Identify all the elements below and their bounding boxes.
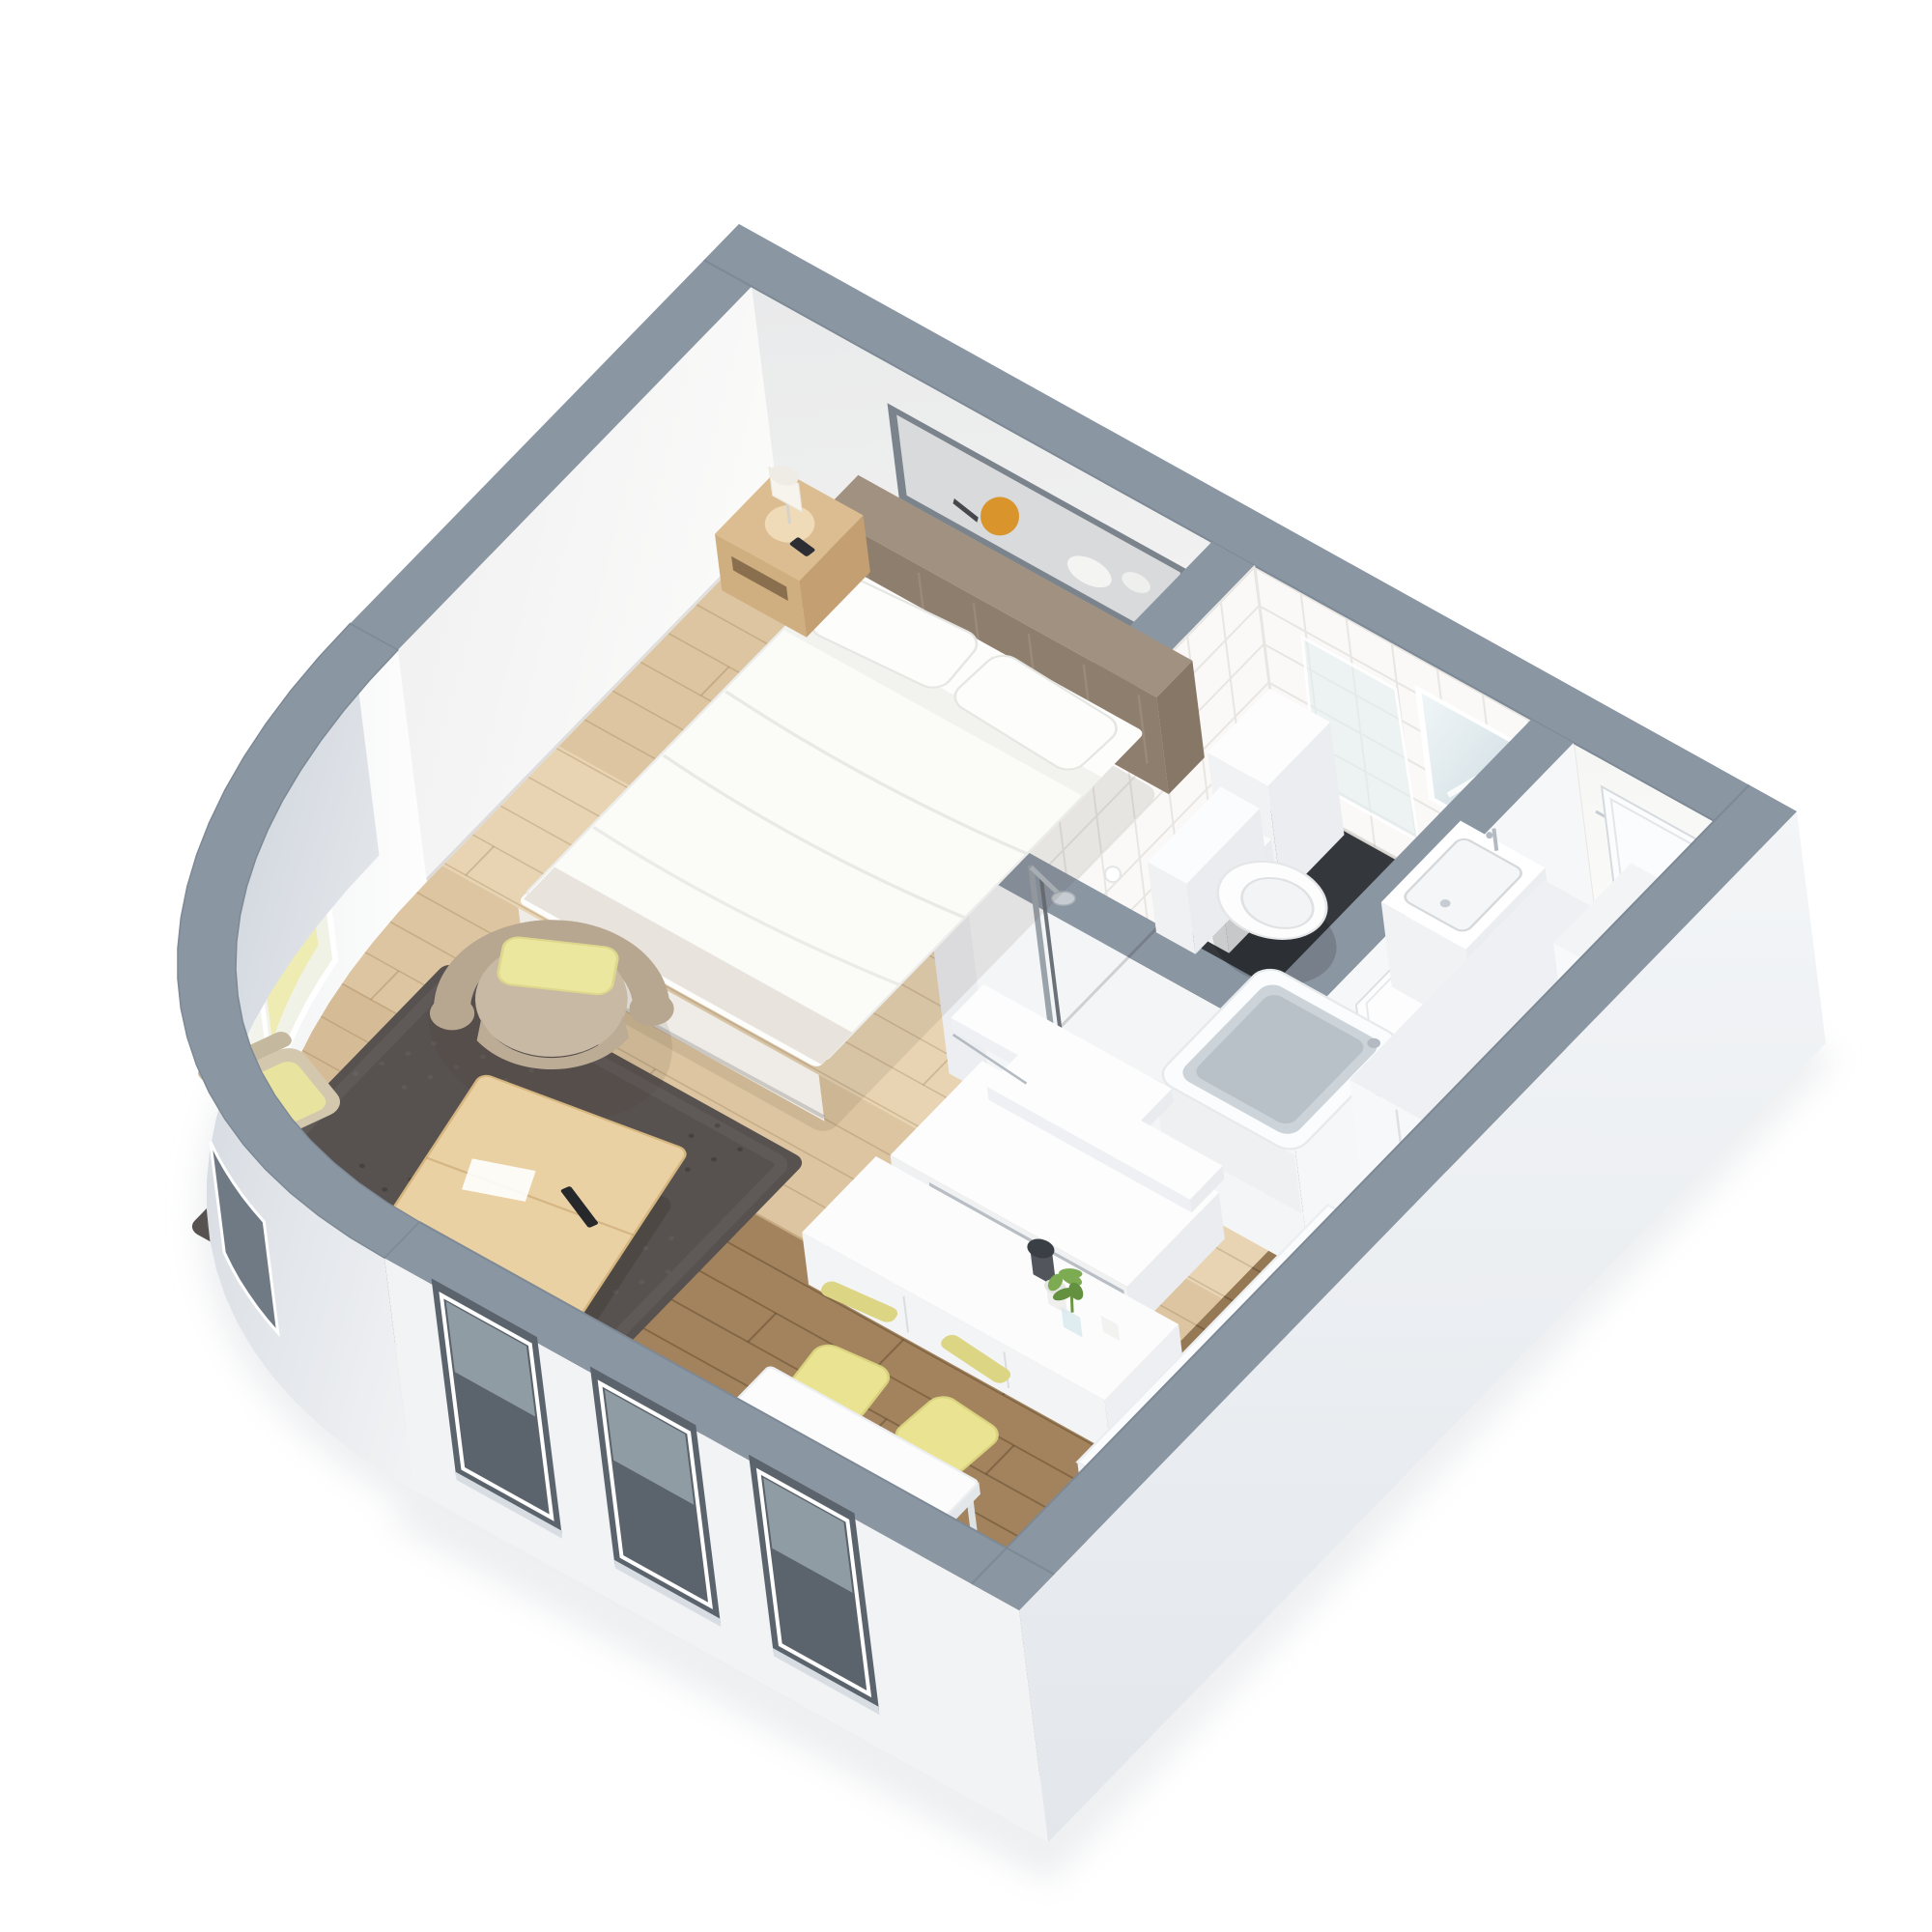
floor-plan-3d-render: TRAVEL — [0, 0, 1932, 1932]
apartment-render: TRAVEL — [53, 224, 1836, 1884]
floor-plan-3d-stage: TRAVEL — [0, 0, 1932, 1932]
